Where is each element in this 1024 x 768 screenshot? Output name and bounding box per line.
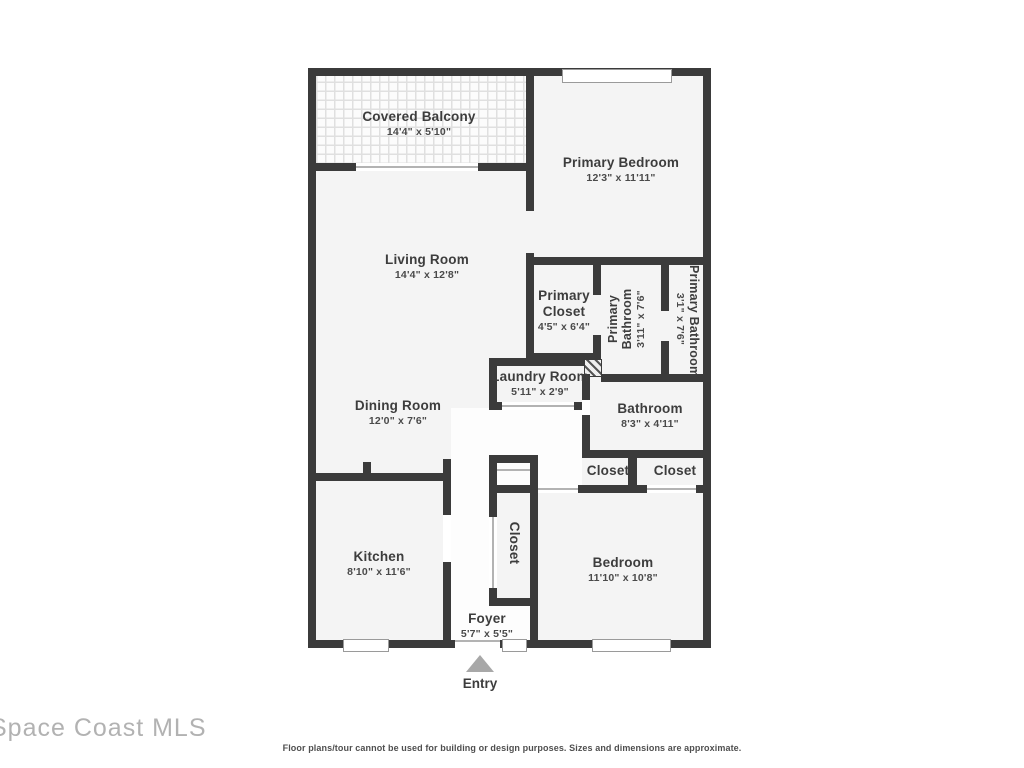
wall <box>661 265 669 311</box>
room-dims: 8'10" x 11'6" <box>309 565 449 579</box>
wall <box>363 462 371 473</box>
room-name: Primary Bathroom <box>606 273 634 365</box>
room-label-bathroom: Bathroom 8'3" x 4'11" <box>580 401 720 431</box>
room-dims: 8'3" x 4'11" <box>580 417 720 431</box>
room-name: Laundry Room <box>470 369 610 385</box>
room-name: Primary Closet <box>522 288 606 320</box>
room-dims: 11'10" x 10'8" <box>543 571 703 585</box>
wall <box>316 473 451 481</box>
room-label-foyer: Foyer 5'7" x 5'5" <box>437 611 537 641</box>
room-name: Closet <box>573 463 643 479</box>
room-name: Bathroom <box>580 401 720 417</box>
room-dims: 12'0" x 7'6" <box>318 414 478 428</box>
room-label-closet-hall-right: Closet <box>640 463 710 479</box>
floor-plan-page: Covered Balcony 14'4" x 5'10" Primary Be… <box>0 0 1024 768</box>
closet-shelf-line <box>497 469 530 471</box>
room-dims: 12'3" x 11'11" <box>521 171 721 185</box>
room-label-primary-bedroom: Primary Bedroom 12'3" x 11'11" <box>521 155 721 185</box>
room-name: Primary Bathroom <box>687 265 701 373</box>
wall <box>526 68 534 211</box>
wall <box>696 485 711 493</box>
window <box>592 639 671 652</box>
room-name: Covered Balcony <box>319 109 519 125</box>
room-label-primary-closet: Primary Closet 4'5" x 6'4" <box>522 288 606 334</box>
watermark-space-coast-mls: Space Coast MLS <box>0 714 207 743</box>
wall <box>489 402 502 410</box>
room-name: Foyer <box>437 611 537 627</box>
wall <box>489 598 538 606</box>
room-label-dining-room: Dining Room 12'0" x 7'6" <box>318 398 478 428</box>
room-label-covered-balcony: Covered Balcony 14'4" x 5'10" <box>319 109 519 139</box>
room-label-kitchen: Kitchen 8'10" x 11'6" <box>309 549 449 579</box>
wall <box>526 257 711 265</box>
room-label-closet-foyer: Closet <box>506 513 522 573</box>
room-dims: 5'11" x 2'9" <box>470 385 610 399</box>
bedroom-entry-frame <box>538 488 578 490</box>
entry-arrow-icon <box>466 655 494 672</box>
room-dims: 3'1" x 7'6" <box>673 265 687 373</box>
wall <box>582 450 711 458</box>
wall <box>308 163 356 171</box>
room-dims: 3'11" x 7'6" <box>634 273 648 365</box>
window <box>343 639 389 652</box>
room-dims: 14'4" x 12'8" <box>327 268 527 282</box>
laundry-door-frame <box>502 405 574 407</box>
entry-label: Entry <box>445 676 515 691</box>
room-label-bedroom: Bedroom 11'10" x 10'8" <box>543 555 703 585</box>
foyer-closet-door-frame <box>492 517 494 588</box>
wall <box>637 485 647 493</box>
room-dims: 4'5" x 6'4" <box>522 320 606 334</box>
room-name: Living Room <box>327 252 527 268</box>
wall <box>443 459 451 515</box>
disclaimer-text: Floor plans/tour cannot be used for buil… <box>0 743 1024 753</box>
sliding-door-frame <box>356 166 478 168</box>
wall <box>578 485 637 493</box>
room-name: Bedroom <box>543 555 703 571</box>
room-label-laundry-room: Laundry Room 5'11" x 2'9" <box>470 369 610 399</box>
window <box>562 69 672 83</box>
room-name: Kitchen <box>309 549 449 565</box>
closet-door-frame <box>647 488 696 490</box>
room-name: Primary Bedroom <box>521 155 721 171</box>
room-label-living-room: Living Room 14'4" x 12'8" <box>327 252 527 282</box>
room-name: Closet <box>640 463 710 479</box>
room-name: Closet <box>506 513 522 573</box>
room-label-closet-hall-small: Closet <box>573 463 643 479</box>
room-name: Dining Room <box>318 398 478 414</box>
room-dims: 5'7" x 5'5" <box>437 627 537 641</box>
room-label-primary-bathroom-inner: Primary Bathroom 3'11" x 7'6" <box>606 273 648 365</box>
room-dims: 14'4" x 5'10" <box>319 125 519 139</box>
room-label-primary-bathroom-outer: Primary Bathroom 3'1" x 7'6" <box>673 265 701 373</box>
